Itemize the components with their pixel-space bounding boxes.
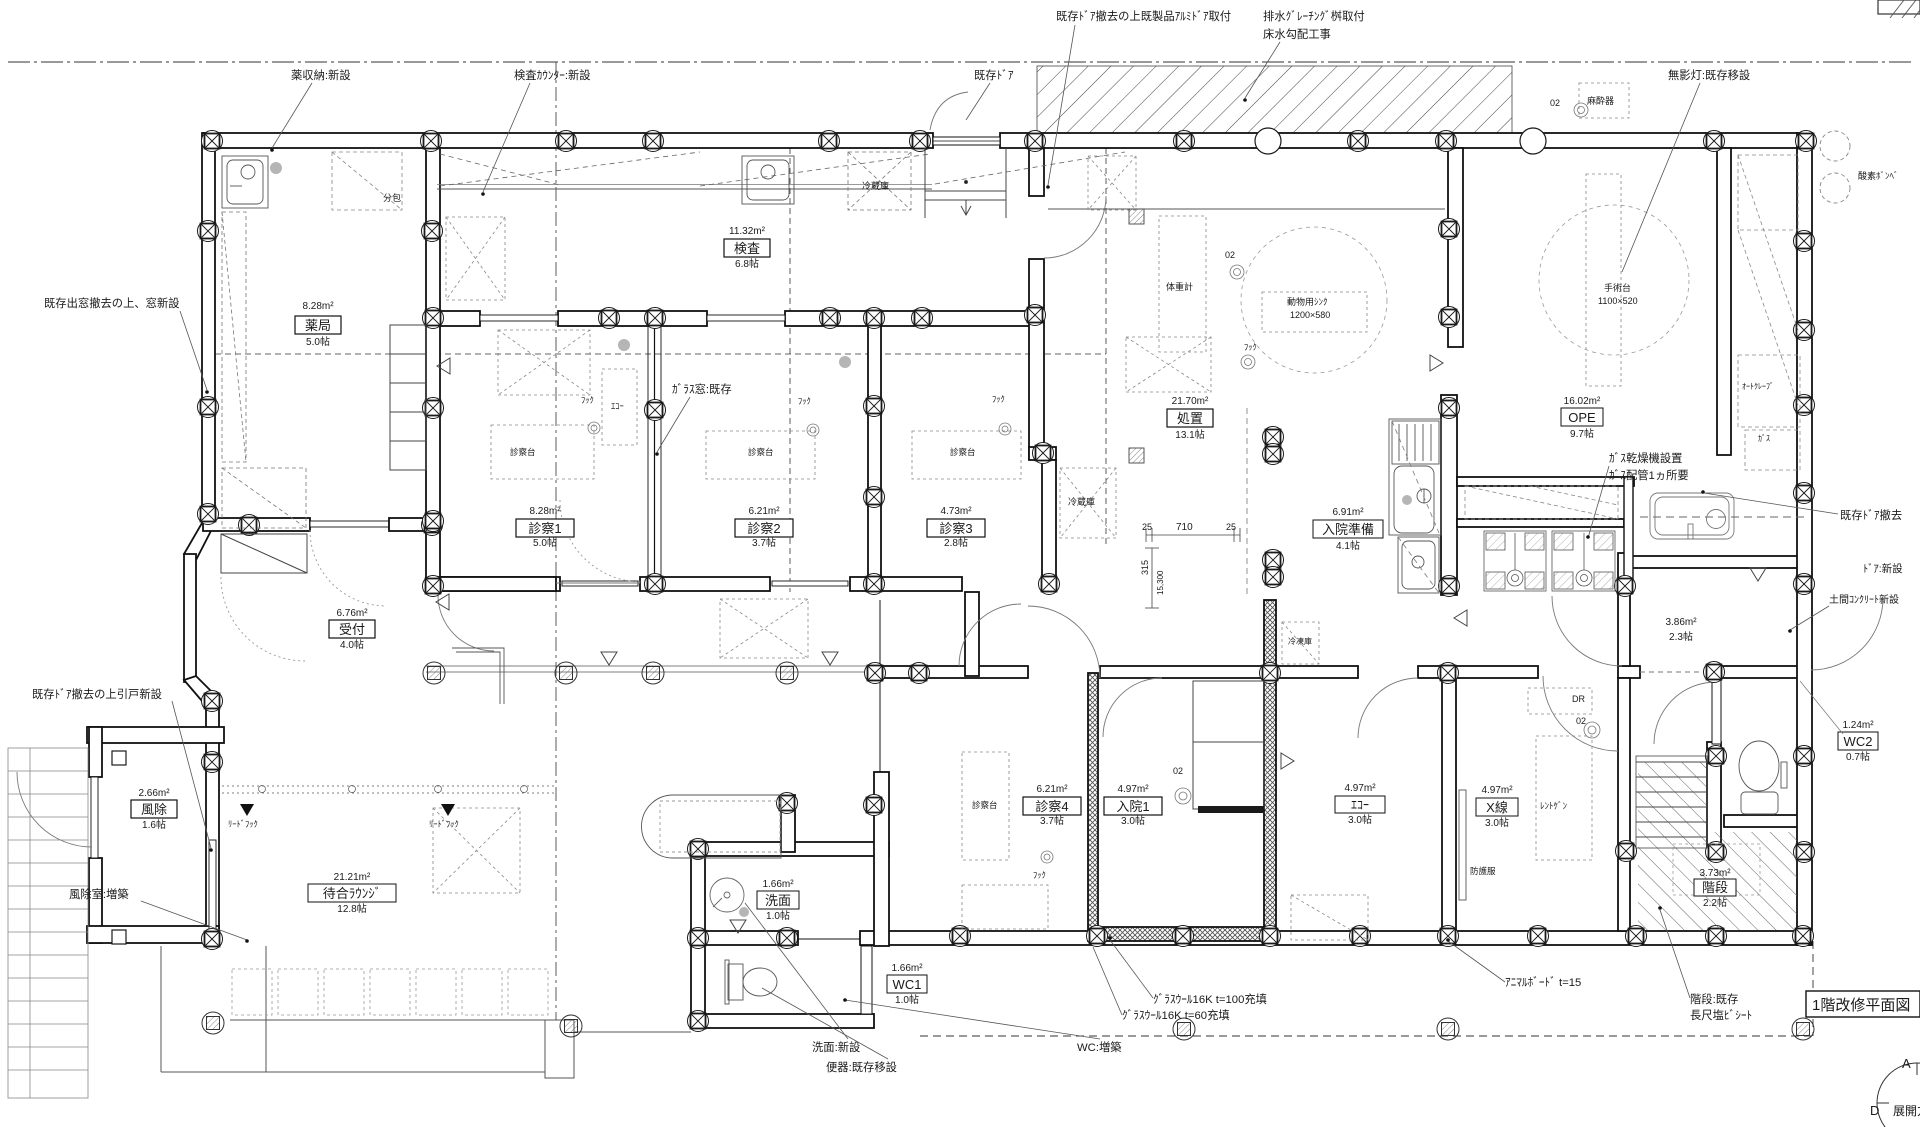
svg-text:1階改修平面図: 1階改修平面図	[1812, 997, 1910, 1014]
svg-text:2.3帖: 2.3帖	[1669, 630, 1693, 643]
svg-text:冷凍庫: 冷凍庫	[1288, 636, 1312, 646]
svg-text:2.66m²: 2.66m²	[138, 788, 170, 799]
svg-text:階段: 階段	[1702, 880, 1728, 895]
svg-text:風除室:増築: 風除室:増築	[69, 887, 129, 901]
svg-text:ｶﾞｽ: ｶﾞｽ	[1758, 434, 1770, 443]
svg-text:6.21m²: 6.21m²	[1036, 784, 1068, 795]
svg-text:21.70m²: 21.70m²	[1172, 396, 1209, 407]
svg-text:3.86m²: 3.86m²	[1665, 617, 1697, 628]
svg-text:12.8帖: 12.8帖	[337, 902, 366, 915]
svg-text:WC1: WC1	[893, 977, 922, 992]
svg-text:1.66m²: 1.66m²	[891, 963, 923, 974]
svg-text:ｶﾞﾗｽ窓:既存: ｶﾞﾗｽ窓:既存	[672, 382, 732, 396]
svg-text:ｱﾆﾏﾙﾎﾞｰﾄﾞ t=15: ｱﾆﾏﾙﾎﾞｰﾄﾞ t=15	[1505, 976, 1581, 989]
svg-text:体重計: 体重計	[1166, 281, 1193, 292]
svg-text:既存出窓撤去の上、窓新設: 既存出窓撤去の上、窓新設	[44, 296, 180, 310]
svg-text:25: 25	[1226, 522, 1236, 532]
svg-text:15,300: 15,300	[1156, 570, 1165, 595]
svg-text:11.32m²: 11.32m²	[729, 226, 766, 237]
svg-text:麻酔器: 麻酔器	[1587, 95, 1614, 106]
svg-text:ｸﾞﾗｽｳｰﾙ16K t=100充填: ｸﾞﾗｽｳｰﾙ16K t=100充填	[1153, 992, 1267, 1006]
svg-text:1.0帖: 1.0帖	[766, 909, 790, 922]
svg-text:ｶﾞｽ乾燥機設置: ｶﾞｽ乾燥機設置	[1609, 451, 1682, 465]
svg-text:診察3: 診察3	[939, 521, 972, 536]
svg-text:防護服: 防護服	[1470, 866, 1496, 876]
svg-text:薬局: 薬局	[305, 318, 331, 333]
svg-text:4.97m²: 4.97m²	[1481, 785, 1513, 796]
svg-text:6.21m²: 6.21m²	[748, 506, 780, 517]
svg-text:冷蔵庫: 冷蔵庫	[1068, 496, 1095, 507]
svg-text:6.76m²: 6.76m²	[336, 608, 368, 619]
svg-text:排水ｸﾞﾚｰﾁﾝｸﾞ桝取付: 排水ｸﾞﾚｰﾁﾝｸﾞ桝取付	[1263, 9, 1365, 23]
svg-text:2.2帖: 2.2帖	[1703, 896, 1727, 909]
svg-text:ｶﾞｽ配管1ヵ所要: ｶﾞｽ配管1ヵ所要	[1609, 468, 1689, 482]
svg-text:WC:増築: WC:増築	[1077, 1040, 1122, 1054]
svg-text:受付: 受付	[339, 622, 365, 637]
svg-text:4.97m²: 4.97m²	[1117, 784, 1149, 795]
svg-text:ﾘｰﾄﾞﾌｯｸ: ﾘｰﾄﾞﾌｯｸ	[429, 819, 459, 829]
svg-text:ｸﾞﾗｽｳｰﾙ16K t=60充填: ｸﾞﾗｽｳｰﾙ16K t=60充填	[1122, 1008, 1230, 1022]
svg-text:25: 25	[1142, 522, 1152, 532]
svg-text:ﾌｯｸ: ﾌｯｸ	[798, 396, 811, 406]
svg-text:ｴｺｰ: ｴｺｰ	[1351, 798, 1369, 812]
svg-text:動物用ｼﾝｸ: 動物用ｼﾝｸ	[1287, 296, 1328, 307]
svg-text:2.8帖: 2.8帖	[944, 536, 968, 549]
svg-text:ﾄﾞｱ:新設: ﾄﾞｱ:新設	[1863, 562, 1903, 575]
svg-text:既存ﾄﾞｱ撤去: 既存ﾄﾞｱ撤去	[1840, 508, 1902, 522]
svg-text:5.0帖: 5.0帖	[306, 335, 330, 348]
svg-text:既存ﾄﾞｱ撤去の上既製品ｱﾙﾐﾄﾞｱ取付: 既存ﾄﾞｱ撤去の上既製品ｱﾙﾐﾄﾞｱ取付	[1056, 9, 1231, 23]
svg-text:診察台: 診察台	[510, 447, 536, 457]
svg-text:展開方: 展開方	[1893, 1103, 1920, 1118]
svg-text:4.73m²: 4.73m²	[940, 506, 972, 517]
svg-text:02: 02	[1576, 716, 1586, 726]
svg-text:待合ﾗｳﾝｼﾞ: 待合ﾗｳﾝｼﾞ	[323, 886, 382, 901]
svg-text:検査ｶｳﾝﾀｰ:新設: 検査ｶｳﾝﾀｰ:新設	[514, 68, 591, 82]
svg-text:ﾌｯｸ: ﾌｯｸ	[992, 394, 1005, 404]
svg-text:710: 710	[1176, 522, 1193, 533]
svg-text:洗面: 洗面	[765, 893, 791, 908]
svg-text:5.0帖: 5.0帖	[533, 536, 557, 549]
svg-text:1.6帖: 1.6帖	[142, 818, 166, 831]
svg-text:ﾚﾝﾄｹﾞﾝ: ﾚﾝﾄｹﾞﾝ	[1540, 801, 1568, 811]
svg-text:21.21m²: 21.21m²	[334, 872, 371, 883]
svg-text:6.8帖: 6.8帖	[735, 257, 759, 270]
svg-text:3.0帖: 3.0帖	[1348, 813, 1372, 826]
svg-text:ﾌｯｸ: ﾌｯｸ	[581, 395, 594, 405]
svg-text:便器:既存移設: 便器:既存移設	[826, 1060, 897, 1074]
svg-text:3.7帖: 3.7帖	[1040, 814, 1064, 827]
svg-text:ｵｰﾄｸﾚｰﾌﾞ: ｵｰﾄｸﾚｰﾌﾞ	[1742, 382, 1774, 391]
svg-text:診察台: 診察台	[950, 447, 976, 457]
svg-text:3.7帖: 3.7帖	[752, 536, 776, 549]
svg-text:土間ｺﾝｸﾘｰﾄ新設: 土間ｺﾝｸﾘｰﾄ新設	[1829, 593, 1899, 606]
svg-text:診察2: 診察2	[747, 521, 780, 536]
svg-text:02: 02	[1225, 250, 1235, 260]
svg-text:診察台: 診察台	[972, 800, 998, 810]
svg-text:長尺塩ﾋﾞｼｰﾄ: 長尺塩ﾋﾞｼｰﾄ	[1690, 1008, 1752, 1022]
svg-text:洗面:新設: 洗面:新設	[812, 1040, 860, 1054]
svg-text:1.24m²: 1.24m²	[1842, 720, 1874, 731]
svg-text:3.0帖: 3.0帖	[1121, 814, 1145, 827]
svg-text:ﾌｯｸ: ﾌｯｸ	[1033, 870, 1046, 880]
svg-text:8.28m²: 8.28m²	[302, 301, 334, 312]
svg-text:3.73m²: 3.73m²	[1699, 868, 1731, 879]
svg-text:315: 315	[1140, 560, 1150, 575]
svg-text:1200×580: 1200×580	[1290, 310, 1330, 320]
svg-text:処置: 処置	[1177, 411, 1203, 426]
svg-text:4.0帖: 4.0帖	[340, 638, 364, 651]
svg-text:診察4: 診察4	[1035, 799, 1068, 814]
svg-text:X線: X線	[1486, 800, 1508, 815]
svg-text:OPE: OPE	[1568, 410, 1596, 425]
svg-text:16.02m²: 16.02m²	[1564, 396, 1601, 407]
svg-text:ﾌｯｸ: ﾌｯｸ	[1244, 342, 1257, 352]
svg-text:A: A	[1902, 1056, 1911, 1071]
svg-text:既存ﾄﾞｱ: 既存ﾄﾞｱ	[974, 68, 1014, 82]
svg-text:02: 02	[1173, 766, 1183, 776]
svg-text:DR: DR	[1572, 694, 1585, 704]
svg-text:冷蔵庫: 冷蔵庫	[862, 180, 889, 191]
svg-text:診察台: 診察台	[748, 447, 774, 457]
svg-text:酸素ﾎﾞﾝﾍﾞ: 酸素ﾎﾞﾝﾍﾞ	[1858, 170, 1899, 181]
svg-text:入院準備: 入院準備	[1322, 522, 1374, 537]
svg-text:02: 02	[1550, 98, 1560, 108]
svg-text:1100×520: 1100×520	[1598, 296, 1638, 306]
svg-text:床水勾配工事: 床水勾配工事	[1263, 27, 1331, 41]
svg-text:4.1帖: 4.1帖	[1336, 539, 1360, 552]
svg-text:9.7帖: 9.7帖	[1570, 427, 1594, 440]
svg-text:無影灯:既存移設: 無影灯:既存移設	[1668, 68, 1750, 82]
svg-text:既存ﾄﾞｱ撤去の上引戸新設: 既存ﾄﾞｱ撤去の上引戸新設	[32, 687, 162, 701]
svg-text:風除: 風除	[141, 802, 167, 817]
svg-text:D: D	[1870, 1103, 1879, 1118]
svg-text:1.0帖: 1.0帖	[895, 993, 919, 1006]
svg-text:6.91m²: 6.91m²	[1332, 507, 1364, 518]
svg-text:0.7帖: 0.7帖	[1846, 750, 1870, 763]
svg-text:診察1: 診察1	[528, 521, 561, 536]
svg-text:3.0帖: 3.0帖	[1485, 816, 1509, 829]
svg-text:検査: 検査	[734, 241, 760, 256]
svg-text:ﾘｰﾄﾞﾌｯｸ: ﾘｰﾄﾞﾌｯｸ	[228, 819, 258, 829]
svg-text:8.28m²: 8.28m²	[529, 506, 561, 517]
svg-text:分包: 分包	[383, 192, 401, 203]
svg-text:階段:既存: 階段:既存	[1690, 992, 1738, 1006]
svg-text:WC2: WC2	[1844, 734, 1873, 749]
svg-text:入院1: 入院1	[1116, 799, 1149, 814]
svg-text:4.97m²: 4.97m²	[1344, 783, 1376, 794]
svg-text:13.1帖: 13.1帖	[1175, 428, 1204, 441]
svg-text:ｴｺｰ: ｴｺｰ	[611, 401, 624, 411]
svg-text:1.66m²: 1.66m²	[762, 879, 794, 890]
svg-text:薬収納:新設: 薬収納:新設	[291, 68, 351, 82]
svg-text:手術台: 手術台	[1604, 282, 1631, 293]
